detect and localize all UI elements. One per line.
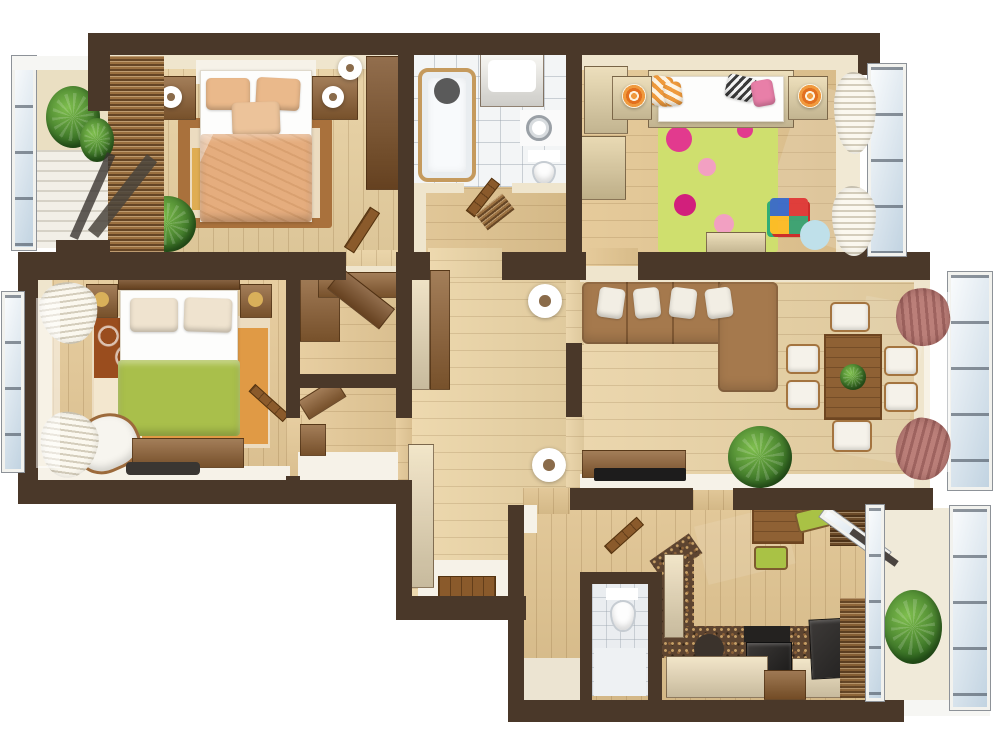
wall-bathroom-kids [566, 33, 582, 255]
wall-mid-d [638, 252, 930, 280]
hall-ceiling-lamp-2 [532, 448, 566, 482]
balcony-left-window-side [12, 56, 36, 250]
kitchen-tall-cabinet [664, 554, 684, 638]
wall-wc-top [580, 572, 662, 584]
kids-pillow-orange-2 [662, 81, 683, 107]
master-pillow-left [130, 298, 178, 332]
bedroom1-lamp-right [322, 86, 344, 108]
living-plant [728, 426, 792, 488]
wall-closet-entrance-div [298, 374, 398, 388]
kids-side-table [706, 232, 766, 254]
wall-living-bottom-b [733, 488, 933, 510]
wall-bedroom1-bathroom [398, 33, 414, 255]
kitchen-stove [744, 626, 790, 642]
wall-top [88, 33, 880, 55]
kids-pillow-pink [750, 78, 776, 107]
entrance-cabinet [300, 424, 326, 456]
wall-hallway-bottom [396, 596, 526, 620]
bedroom1-blanket [200, 134, 312, 222]
floor-kitchen-doorway [693, 488, 733, 510]
master-blanket [118, 360, 240, 436]
wall-living-bottom-a [570, 488, 693, 510]
balcony-right-plant [884, 590, 942, 664]
wall-hall-living [566, 343, 582, 417]
kitchen-balcony-window [866, 505, 884, 701]
wall-bottom-main [508, 700, 904, 722]
sofa-pillow-1 [596, 286, 626, 319]
kids-dresser-2 [580, 136, 626, 200]
bedroom1-pillow-center [231, 101, 280, 137]
hall-ceiling-lamp-1 [528, 284, 562, 318]
bath-wall-ledge-right [512, 183, 570, 193]
wc-toilet-tank [606, 588, 638, 600]
dining-chair-right-1 [884, 346, 918, 376]
wall-hallway-left [396, 480, 412, 606]
wall-step-vertical [508, 505, 524, 722]
dining-chair-top [830, 302, 870, 332]
hall-wardrobe-wood [430, 270, 450, 390]
rug-kids-flower-1 [666, 126, 692, 152]
bath-sink [488, 60, 536, 92]
dining-chair-right-2 [884, 382, 918, 412]
wall-closet-hall-vert [396, 252, 412, 418]
master-pillow-right [183, 297, 232, 333]
kids-ball [800, 220, 830, 250]
dining-chair-left-1 [786, 344, 820, 374]
bedroom1-wood-blinds [108, 56, 164, 252]
kitchen-cabinet-1 [666, 656, 768, 698]
wallface-lowerhall-corner [522, 658, 580, 700]
kitchen-stool [764, 670, 806, 700]
bedroom1-wardrobe [366, 56, 400, 190]
bath-wall-ledge-left [412, 183, 464, 193]
master-lamp-right [248, 292, 263, 307]
wall-bedroom1-left [88, 33, 110, 111]
kitchen-chair-1 [754, 546, 788, 570]
wall-master-closet [286, 252, 300, 418]
wall-bottom-left [18, 480, 400, 504]
tv [594, 468, 686, 481]
wall-master-closet-b [286, 476, 300, 504]
dining-chair-left-2 [786, 380, 820, 410]
master-sheer-curtain [36, 298, 60, 468]
dining-centerpiece [840, 364, 866, 390]
living-bay-window [948, 272, 992, 490]
kids-lamp-right [798, 84, 822, 108]
master-window [2, 292, 24, 472]
sofa-pillow-4 [704, 286, 734, 319]
wall-wc-left [580, 572, 592, 702]
master-tray [126, 462, 200, 475]
wallface-bath-hall-left [412, 187, 426, 257]
rug-kids-flower-5 [714, 214, 734, 234]
floor-plan [0, 0, 1000, 742]
bedroom1-ceiling-lamp [338, 56, 362, 80]
kids-lamp-left [622, 84, 646, 108]
rug-kids-flower-3 [674, 194, 696, 216]
wall-wc-right [648, 572, 662, 702]
sofa-pillow-2 [633, 287, 662, 320]
wallface-entrancehall-bottom [298, 452, 398, 480]
wall-mid-c [502, 252, 586, 280]
shower-head [434, 78, 460, 104]
dining-chair-bottom [832, 420, 872, 452]
front-door [438, 576, 496, 598]
balcony-right-window [950, 506, 990, 710]
sofa-pillow-3 [668, 287, 697, 320]
wallface-wc-lower [594, 648, 646, 696]
rug-kids-flower-2 [698, 158, 716, 176]
washing-machine-door [526, 115, 552, 141]
